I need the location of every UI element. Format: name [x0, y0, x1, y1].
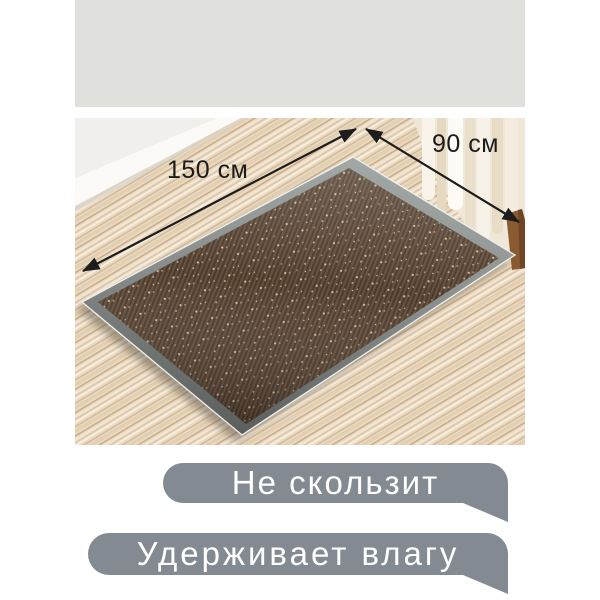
- feature-badge-no-slip: Не скользит: [163, 463, 508, 503]
- badge-label: Удерживает влагу: [88, 533, 508, 575]
- badge-label: Не скользит: [163, 463, 508, 503]
- badge-tail: [463, 575, 508, 594]
- room-scene-svg: [75, 118, 525, 445]
- top-strip: [75, 0, 525, 107]
- feature-badge-moisture: Удерживает влагу: [88, 533, 508, 575]
- badge-tail: [463, 503, 508, 522]
- product-image[interactable]: 150 см 90 см: [75, 118, 525, 445]
- dimension-label-length: 150 см: [167, 156, 248, 185]
- page-root: { "product_image": { "annotations": { "l…: [0, 0, 600, 600]
- dimension-label-width: 90 см: [432, 130, 499, 159]
